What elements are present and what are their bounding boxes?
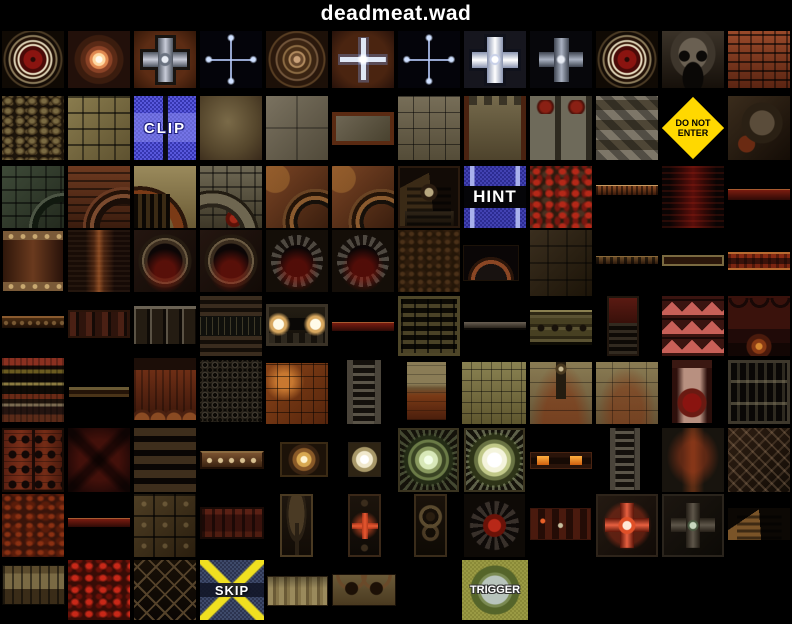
texture-zigzag-wall[interactable] (596, 96, 658, 160)
texture-red-medallion[interactable] (2, 31, 64, 88)
texture-red-banded-strip[interactable] (728, 252, 790, 270)
texture-chain-strip[interactable] (2, 316, 64, 330)
texture-riveted-strip[interactable] (200, 451, 264, 469)
texture-hint-marker[interactable]: HINT (464, 166, 526, 228)
texture-machine-light-panel[interactable] (530, 508, 591, 540)
texture-ladder[interactable] (610, 428, 640, 490)
texture-meat-column[interactable] (672, 360, 712, 423)
texture-rust-pot-wall[interactable] (134, 358, 196, 420)
texture-machinery-wall[interactable] (200, 296, 262, 356)
texture-trigger-marker[interactable]: TRIGGER (462, 560, 528, 620)
texture-stone-arch-wall[interactable] (200, 166, 262, 228)
texture-rust-streak[interactable] (68, 230, 130, 292)
texture-dark-portal[interactable] (200, 230, 262, 292)
texture-rust-gear-arch[interactable] (266, 166, 328, 228)
texture-rust-strip[interactable] (596, 185, 658, 196)
texture-small-white-medallion[interactable] (348, 442, 381, 477)
texture-toothed-portal[interactable] (332, 230, 394, 292)
texture-dark-cross-tile[interactable] (662, 494, 724, 557)
texture-red-medallion[interactable] (596, 31, 658, 88)
texture-faint-glow-cross[interactable] (200, 31, 262, 88)
texture-narrow-gear-panel[interactable] (414, 494, 447, 557)
texture-framed-strip[interactable] (662, 255, 724, 266)
texture-tan-wall-skull-post[interactable] (530, 362, 592, 424)
texture-banded-strip[interactable] (68, 386, 130, 398)
texture-red-rough-wall[interactable] (2, 494, 64, 557)
texture-rust-gear-arch[interactable] (332, 166, 394, 228)
texture-demon-faces-strip[interactable] (332, 574, 396, 606)
texture-label: HINT (464, 166, 526, 228)
texture-tan-plaster[interactable] (200, 96, 262, 160)
texture-bronze-plates[interactable] (134, 494, 196, 557)
texture-slatted-door[interactable] (728, 360, 790, 424)
texture-dotted-strip[interactable] (596, 256, 658, 265)
texture-label: SKIP (200, 560, 264, 620)
texture-tan-stained-wall[interactable] (596, 362, 658, 424)
texture-machine-skull-wall[interactable] (728, 96, 790, 160)
texture-framed-panel[interactable] (332, 112, 394, 145)
texture-red-cross-tile[interactable] (596, 494, 658, 557)
texture-totem-strip[interactable] (2, 565, 65, 605)
texture-demon-arch-wall[interactable] (728, 296, 790, 356)
texture-red-door-panel[interactable] (2, 428, 64, 492)
texture-red-lava-wall[interactable] (68, 560, 130, 620)
texture-studded-strip[interactable] (530, 310, 592, 345)
texture-red-strip[interactable] (332, 322, 394, 331)
texture-light-strip[interactable] (530, 452, 592, 469)
texture-red-strip[interactable] (68, 518, 130, 527)
texture-slotted-strip[interactable] (68, 310, 130, 338)
texture-tan-arch-bars[interactable] (134, 166, 196, 228)
texture-dark-red-blotch[interactable] (68, 428, 130, 492)
texture-stained-half-wall[interactable] (407, 362, 446, 420)
texture-demon-face-columns[interactable] (530, 96, 592, 160)
texture-mottled-brown[interactable] (398, 230, 460, 292)
texture-narrow-arch-door[interactable] (280, 494, 313, 557)
texture-chainmail-mesh[interactable] (200, 360, 262, 422)
texture-stone-slab[interactable] (266, 96, 328, 160)
texture-column-panel[interactable] (200, 507, 264, 539)
texture-dark-stone[interactable] (530, 230, 592, 296)
texture-green-arch-wall[interactable] (2, 166, 64, 228)
texture-rust-streak-column[interactable] (662, 428, 724, 492)
texture-rust-tile-wall[interactable] (266, 363, 328, 424)
texture-diamond-plate[interactable] (728, 428, 790, 492)
texture-gear-skull-medallion[interactable] (464, 494, 525, 557)
texture-sheet: deadmeat.wad CLIPDO NOT ENTERHINTSKIPTRI… (0, 0, 792, 624)
texture-faint-glow-cross[interactable] (398, 31, 460, 88)
texture-gray-strip[interactable] (464, 322, 526, 330)
texture-dark-portal[interactable] (134, 230, 196, 292)
texture-red-grate-panel[interactable] (607, 296, 639, 356)
texture-riveted-panel[interactable] (2, 230, 64, 292)
texture-toothed-portal[interactable] (266, 230, 328, 292)
texture-glow-cross-rust[interactable] (332, 31, 394, 88)
texture-label: TRIGGER (462, 560, 528, 620)
texture-label: DO NOT ENTER (662, 96, 724, 160)
texture-red-glow-column[interactable] (662, 166, 724, 228)
texture-step-pyramid[interactable] (728, 508, 790, 540)
texture-red-spike-wall[interactable] (662, 296, 724, 356)
texture-stone-blocks[interactable] (68, 96, 130, 160)
texture-metal-cross-dark[interactable] (530, 31, 592, 88)
texture-small-gold-medallion[interactable] (280, 442, 328, 477)
texture-ring-mandala[interactable] (266, 31, 328, 88)
texture-red-strip[interactable] (728, 189, 790, 200)
texture-do-not-enter-sign[interactable]: DO NOT ENTER (662, 96, 724, 160)
texture-headlight-panel[interactable] (266, 304, 328, 346)
texture-panel-strip[interactable] (134, 306, 196, 344)
texture-waffle-grid[interactable] (134, 428, 196, 492)
texture-slot-grate[interactable] (398, 296, 460, 356)
page-title: deadmeat.wad (0, 2, 792, 26)
texture-red-brick[interactable] (728, 31, 790, 88)
texture-bright-mandala[interactable] (464, 428, 525, 492)
texture-stone-grid[interactable] (398, 96, 460, 160)
texture-ladder[interactable] (347, 360, 381, 424)
texture-label: CLIP (134, 96, 196, 160)
texture-lava-veins[interactable] (530, 166, 592, 228)
texture-olive-brick[interactable] (462, 362, 526, 424)
texture-diamond-mesh[interactable] (134, 560, 196, 620)
texture-carved-figures-strip[interactable] (267, 576, 328, 606)
texture-skull-shrine[interactable] (398, 166, 460, 228)
texture-clip-marker[interactable]: CLIP (134, 96, 196, 160)
texture-gravel[interactable] (2, 96, 64, 160)
texture-machine-arch[interactable] (463, 245, 519, 281)
texture-narrow-red-cross-panel[interactable] (348, 494, 381, 557)
texture-bright-cross[interactable] (464, 31, 526, 88)
texture-layered-bands[interactable] (2, 358, 64, 422)
texture-skip-marker[interactable]: SKIP (200, 560, 264, 620)
texture-brick-arch-wall[interactable] (68, 166, 130, 228)
texture-metal-skull[interactable] (662, 31, 724, 88)
texture-framed-stone-wall[interactable] (464, 96, 526, 160)
texture-glowing-mandala[interactable] (398, 428, 459, 492)
texture-metal-cross-rust[interactable] (134, 31, 196, 88)
texture-glow-mandala[interactable] (68, 31, 130, 88)
